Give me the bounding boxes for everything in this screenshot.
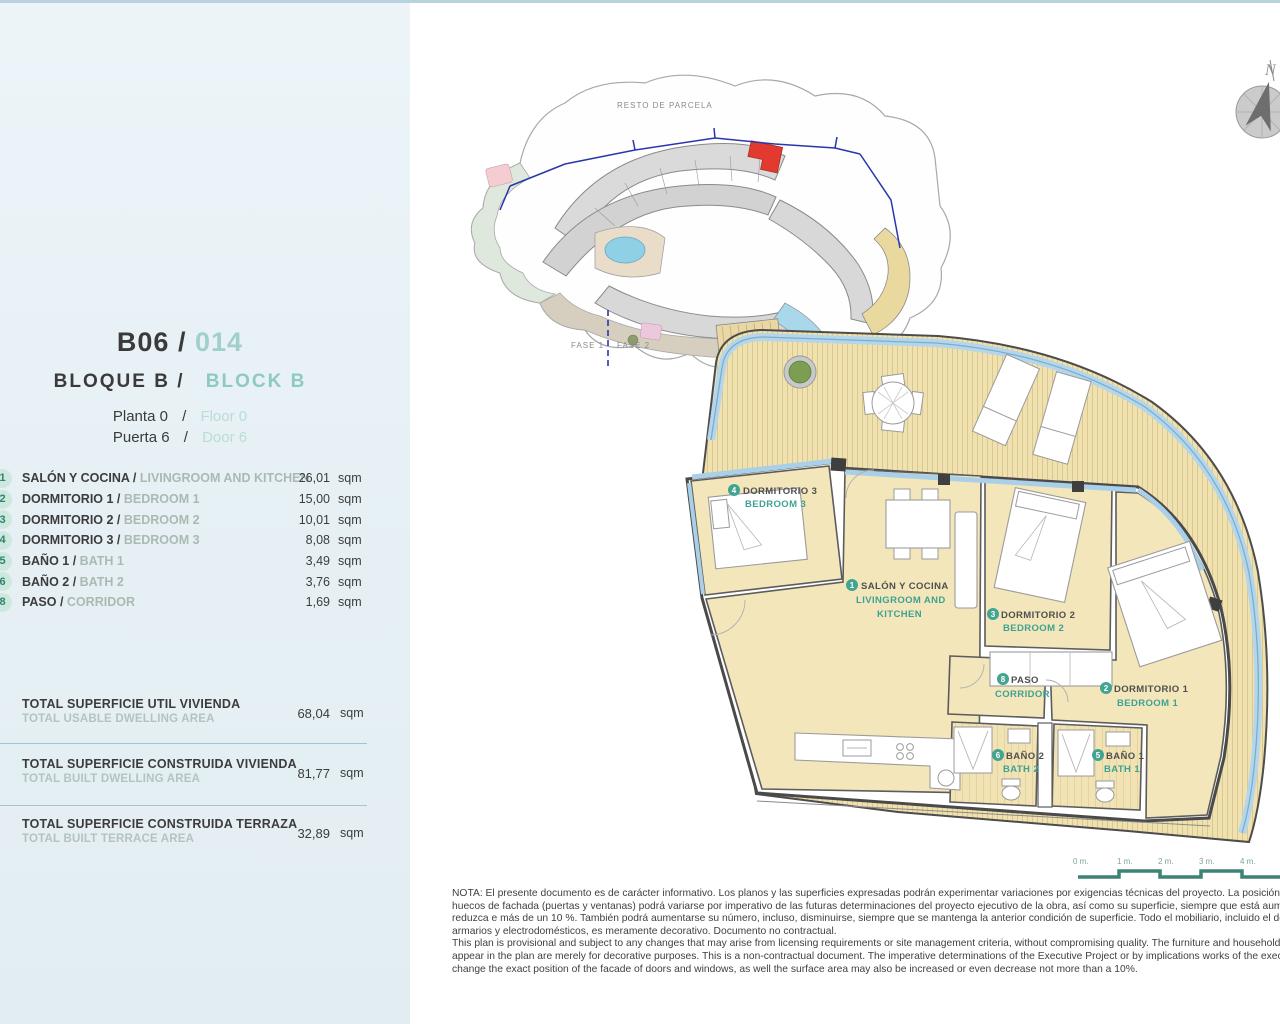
room-number-badge: 6 <box>0 572 12 591</box>
svg-text:DORMITORIO 2: DORMITORIO 2 <box>1001 610 1075 621</box>
room-area-value: 3,76 <box>272 575 330 589</box>
apartment-floor-plan: 4 DORMITORIO 3 BEDROOM 3 1 SALÓN Y COCIN… <box>680 312 1280 860</box>
scale-tick: 2 m. <box>1158 857 1174 866</box>
room-area-unit: sqm <box>338 554 362 568</box>
unit-title: B06 / 014 <box>0 327 360 358</box>
block-row: BLOQUE B / BLOCK B <box>0 371 360 393</box>
totals-divider <box>0 805 367 806</box>
floor-label-en: Floor 0 <box>200 408 247 425</box>
block-separator: / <box>177 371 184 392</box>
door-label-en: Door 6 <box>202 429 247 446</box>
room-row-bath1: 5 BAÑO 1 / BATH 1 3,49 sqm <box>0 551 410 572</box>
note-line-en: change the exact position of the facade … <box>452 964 1280 977</box>
legal-notes: NOTA: El presente documento es de caráct… <box>452 888 1280 976</box>
dining-table <box>886 489 950 559</box>
note-line-en: This plan is provisional and subject to … <box>452 938 1280 951</box>
room-name-es: BAÑO 1 / <box>22 554 80 568</box>
room-area-unit: sqm <box>338 471 362 485</box>
room-area-value: 8,08 <box>272 533 330 547</box>
block-label-es: BLOQUE B <box>54 371 170 392</box>
total-unit: sqm <box>340 706 364 720</box>
room-name-en: BEDROOM 1 <box>124 492 200 506</box>
room-number-badge: 3 <box>0 510 12 529</box>
svg-text:BAÑO 2: BAÑO 2 <box>1006 751 1044 762</box>
room-area-unit: sqm <box>338 513 362 527</box>
scale-tick: 4 m. <box>1240 857 1256 866</box>
svg-text:BAÑO 1: BAÑO 1 <box>1106 751 1145 762</box>
scale-tick: 3 m. <box>1199 857 1215 866</box>
svg-text:2: 2 <box>1104 684 1109 693</box>
svg-text:CORRIDOR: CORRIDOR <box>995 689 1050 700</box>
svg-text:BEDROOM 3: BEDROOM 3 <box>745 499 806 510</box>
room-name-es: DORMITORIO 1 / <box>22 492 124 506</box>
room-name-en: BEDROOM 3 <box>124 533 200 547</box>
total-usable-block: TOTAL SUPERFICIE UTIL VIVIENDA TOTAL USA… <box>22 697 410 725</box>
unit-number: 014 <box>195 327 243 357</box>
room-area-unit: sqm <box>338 533 362 547</box>
sofa <box>955 512 977 608</box>
scale-tick: 1 m. <box>1117 857 1133 866</box>
room-row-bedroom1: 2 DORMITORIO 1 / BEDROOM 1 15,00 sqm <box>0 489 410 510</box>
room-area-unit: sqm <box>338 575 362 589</box>
room-number-badge: 1 <box>0 469 12 488</box>
room-area-value: 3,49 <box>272 554 330 568</box>
north-compass-icon: N <box>1232 55 1280 147</box>
room-area-list: 1 SALÓN Y COCINA / LIVINGROOM AND KITCHE… <box>0 468 410 613</box>
totals-divider <box>0 743 367 744</box>
svg-text:PASO: PASO <box>1011 675 1039 686</box>
room-row-salon: 1 SALÓN Y COCINA / LIVINGROOM AND KITCHE… <box>0 468 410 489</box>
floor-row: Planta 0 / Floor 0 <box>0 408 360 425</box>
room-number-badge: 2 <box>0 490 12 509</box>
room-row-bath2: 6 BAÑO 2 / BATH 2 3,76 sqm <box>0 571 410 592</box>
scale-tick: 0 m. <box>1073 857 1089 866</box>
note-line-es: NOTA: El presente documento es de caráct… <box>452 888 1280 901</box>
top-accent-strip <box>0 0 1280 3</box>
unit-code: B06 <box>117 327 170 357</box>
svg-text:8: 8 <box>1001 675 1006 684</box>
room-row-bedroom2: 3 DORMITORIO 2 / BEDROOM 2 10,01 sqm <box>0 509 410 530</box>
svg-text:BEDROOM 1: BEDROOM 1 <box>1117 698 1178 709</box>
svg-text:3: 3 <box>991 610 996 619</box>
scale-bar: 0 m. 1 m. 2 m. 3 m. 4 m. <box>1065 850 1280 884</box>
room-number-badge: 5 <box>0 552 12 571</box>
room-area-value: 10,01 <box>272 513 330 527</box>
svg-text:DORMITORIO 3: DORMITORIO 3 <box>743 486 817 497</box>
fase2-label: FASE 2 <box>617 341 650 350</box>
room-name-es: BAÑO 2 / <box>22 575 80 589</box>
pink-zone-south <box>640 323 662 341</box>
terrace-plant <box>784 356 816 388</box>
total-built-terrace-block: TOTAL SUPERFICIE CONSTRUIDA TERRAZA TOTA… <box>22 817 410 845</box>
total-built-dwelling-block: TOTAL SUPERFICIE CONSTRUIDA VIVIENDA TOT… <box>22 757 410 785</box>
room-name-es: SALÓN Y COCINA / <box>22 471 140 485</box>
plan-sheet: B06 / 014 BLOQUE B / BLOCK B Planta 0 / … <box>0 0 1280 1024</box>
room-name-es: PASO / <box>22 595 67 609</box>
note-line-es: armarios y electrodomésticos, es meramen… <box>452 926 1280 939</box>
svg-text:LIVINGROOM AND: LIVINGROOM AND <box>856 595 946 606</box>
room-name-en: BEDROOM 2 <box>124 513 200 527</box>
total-unit: sqm <box>340 826 364 840</box>
room-row-bedroom3: 4 DORMITORIO 3 / BEDROOM 3 8,08 sqm <box>0 530 410 551</box>
svg-text:BEDROOM 2: BEDROOM 2 <box>1003 623 1064 634</box>
total-value: 32,89 <box>258 826 330 841</box>
room-name-en: BATH 1 <box>80 554 124 568</box>
room-row-corridor: 8 PASO / CORRIDOR 1,69 sqm <box>0 592 410 613</box>
total-value: 68,04 <box>258 706 330 721</box>
note-line-es: huecos de fachada (puertas y ventanas) p… <box>452 901 1280 914</box>
room-number-badge: 8 <box>0 593 12 612</box>
total-unit: sqm <box>340 766 364 780</box>
room-name-es: DORMITORIO 2 / <box>22 513 124 527</box>
services-shaft <box>1038 723 1052 807</box>
block-label-en: BLOCK B <box>206 371 307 392</box>
total-value: 81,77 <box>258 766 330 781</box>
fase1-label: FASE 1 <box>571 341 604 350</box>
room-number-badge: 4 <box>0 531 12 550</box>
svg-text:SALÓN Y COCINA: SALÓN Y COCINA <box>861 580 949 592</box>
door-label-es: Puerta 6 <box>113 429 170 446</box>
info-sidebar: B06 / 014 BLOQUE B / BLOCK B Planta 0 / … <box>0 0 410 1024</box>
room-area-unit: sqm <box>338 492 362 506</box>
floor-separator: / <box>182 408 186 425</box>
room-area-value: 1,69 <box>272 595 330 609</box>
door-row: Puerta 6 / Door 6 <box>0 429 360 446</box>
resto-de-parcela-label: RESTO DE PARCELA <box>617 101 713 110</box>
room-name-en: CORRIDOR <box>67 595 135 609</box>
room-area-value: 26,01 <box>272 471 330 485</box>
pool <box>605 237 645 263</box>
note-line-en: appear in the plan are merely for decora… <box>452 951 1280 964</box>
scale-bar-steps <box>1078 871 1280 877</box>
svg-text:BATH 1: BATH 1 <box>1104 764 1140 775</box>
room-area-unit: sqm <box>338 595 362 609</box>
unit-separator: / <box>178 327 195 357</box>
note-line-es: reduzca e más de un 10 %. También podrá … <box>452 913 1280 926</box>
svg-text:KITCHEN: KITCHEN <box>877 609 922 620</box>
door-separator: / <box>184 429 188 446</box>
floor-label-es: Planta 0 <box>113 408 168 425</box>
room-area-value: 15,00 <box>272 492 330 506</box>
room-name-es: DORMITORIO 3 / <box>22 533 124 547</box>
svg-text:DORMITORIO 1: DORMITORIO 1 <box>1114 684 1189 695</box>
svg-text:1: 1 <box>850 581 855 590</box>
room-name-en: BATH 2 <box>80 575 124 589</box>
svg-text:6: 6 <box>996 751 1001 760</box>
svg-text:5: 5 <box>1096 751 1101 760</box>
svg-text:4: 4 <box>732 486 737 495</box>
svg-text:BATH 2: BATH 2 <box>1003 764 1039 775</box>
